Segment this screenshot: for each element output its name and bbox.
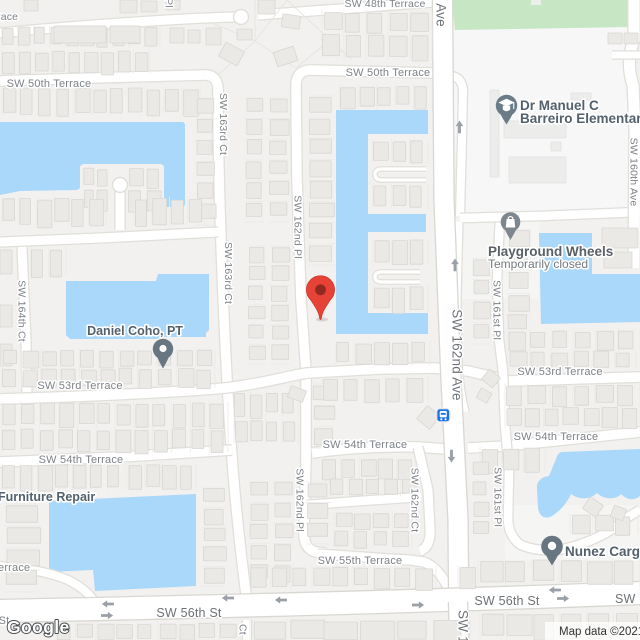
svg-text:Temporarily closed: Temporarily closed	[488, 257, 588, 271]
svg-text:SW 162nd Pl: SW 162nd Pl	[292, 195, 304, 258]
svg-text:Barreiro Elementary: Barreiro Elementary	[520, 111, 640, 126]
svg-text:SW 54th Terrace: SW 54th Terrace	[323, 439, 408, 451]
svg-text:SW 54th Terrace: SW 54th Terrace	[514, 431, 599, 443]
svg-text:SW 161st Pl: SW 161st Pl	[491, 280, 503, 340]
svg-text:SW 56th St: SW 56th St	[474, 594, 540, 608]
svg-text:Map data ©2021: Map data ©2021	[559, 626, 640, 638]
svg-text:SW 50th Terrace: SW 50th Terrace	[346, 67, 431, 79]
svg-text:SW 56th St: SW 56th St	[156, 606, 222, 620]
svg-text:SW 53rd Terrace: SW 53rd Terrace	[517, 366, 602, 378]
svg-text:Ave: Ave	[434, 3, 449, 27]
svg-text:Pl: Pl	[163, 0, 175, 8]
svg-text:SW 48th Terrace: SW 48th Terrace	[344, 0, 425, 10]
svg-text:SW 161st Pl: SW 161st Pl	[492, 467, 504, 527]
svg-text:SW 162nd Ct: SW 162nd Ct	[409, 468, 421, 533]
svg-text:Ct: Ct	[237, 624, 249, 635]
svg-text:SW 5: SW 5	[615, 592, 640, 606]
svg-text:Nunez Cargo: Nunez Cargo	[565, 544, 640, 559]
svg-text:SW 160th Ave: SW 160th Ave	[628, 138, 640, 207]
svg-text:SW 162nd Ave: SW 162nd Ave	[450, 309, 465, 400]
svg-text:SW 50th Terrace: SW 50th Terrace	[7, 78, 92, 90]
svg-text:errace: errace	[0, 562, 30, 574]
svg-text:Daniel Coho, PT: Daniel Coho, PT	[87, 324, 183, 338]
svg-text:SW 16: SW 16	[456, 610, 471, 640]
svg-text:SW 163rd Ct: SW 163rd Ct	[222, 242, 234, 304]
svg-text:SW 163rd Ct: SW 163rd Ct	[217, 93, 229, 155]
svg-text:Furniture Repair: Furniture Repair	[0, 490, 95, 504]
svg-text:SW 55th Terrace: SW 55th Terrace	[318, 555, 403, 567]
svg-text:Google: Google	[7, 617, 70, 637]
svg-text:SW 164th Ct: SW 164th Ct	[16, 280, 28, 342]
svg-text:race: race	[0, 11, 18, 23]
svg-text:SW 54th Terrace: SW 54th Terrace	[39, 454, 124, 466]
svg-text:SW 53rd Terrace: SW 53rd Terrace	[37, 380, 122, 392]
svg-text:SW 162nd Pl: SW 162nd Pl	[294, 468, 306, 531]
